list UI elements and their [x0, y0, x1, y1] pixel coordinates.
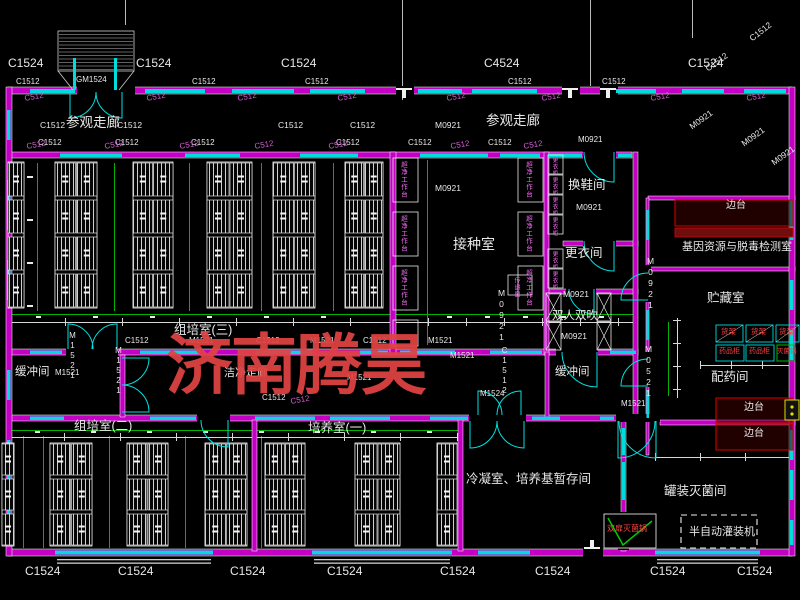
- label-locker-2: 更衣柜: [551, 177, 557, 197]
- label-c1512-cor-3: C1512: [278, 121, 303, 130]
- label-locker-1: 更衣柜: [551, 157, 557, 177]
- label-c1512-top-1: C1512: [16, 78, 40, 86]
- label-medicine-cabinet-2: 药品柜: [749, 348, 770, 355]
- label-clean-bench-l1: 超净工作台: [399, 161, 406, 199]
- watermark-text: 济南腾昊: [166, 332, 426, 398]
- label-m0921-diag-2: M0921: [740, 126, 766, 148]
- label-c1512-cor-4: C1512: [350, 121, 375, 130]
- label-semi-auto-filler: 半自动灌装机: [689, 527, 755, 538]
- label-side-bench-2: 边台: [744, 403, 764, 413]
- label-locker-3: 更衣柜: [551, 197, 557, 217]
- label-clean-bench-r2: 超净工作台: [524, 215, 531, 253]
- label-c1524-bot-4: C1524: [327, 565, 362, 577]
- label-c1512-w2-6: C1512: [488, 139, 512, 147]
- label-locker-6: 更衣柜: [551, 271, 557, 291]
- label-m1521-mid-3: M1521: [428, 337, 452, 345]
- label-m0921-cor: M0921: [435, 121, 461, 130]
- label-m0921-change: M0921: [563, 290, 589, 299]
- label-shelf-1: 货架: [721, 328, 736, 336]
- label-c512-top-2: C512: [146, 92, 166, 103]
- label-room-air-shower: 双人双吹: [552, 311, 598, 323]
- label-c1512-cor-2: C1512: [117, 121, 142, 130]
- label-c512-top-6: C512: [541, 92, 561, 103]
- label-c512-top-5: C512: [446, 92, 466, 103]
- label-clean-bench-l3: 超净工作台: [399, 269, 406, 307]
- label-c1512-top-3: C1512: [305, 78, 329, 86]
- label-c1524-bot-3: C1524: [230, 565, 265, 577]
- label-gm1524: GM1524: [76, 76, 107, 84]
- label-c512-top-3: C512: [237, 92, 257, 103]
- label-clean-bench-l2: 超净工作台: [399, 215, 406, 253]
- label-room-visit-corridor-left: 参观走廊: [66, 116, 120, 130]
- label-clean-bench-r1: 超净工作台: [524, 161, 531, 199]
- label-c512-w2-6: C512: [450, 140, 470, 151]
- label-c512-top-4: C512: [337, 92, 357, 103]
- label-room-shoe-change: 换鞋间: [568, 179, 606, 192]
- label-c512-w2-7: C512: [523, 140, 543, 151]
- label-c1524-bot-1: C1524: [25, 565, 60, 577]
- label-m0921-w2: M0921: [578, 136, 602, 144]
- drawing-labels-layer: 参观走廊参观走廊组培室(三)接种室换鞋间更衣间双人双吹缓冲间缓冲间组培室(二)培…: [0, 0, 800, 600]
- label-c1524-top-1: C1524: [8, 57, 43, 69]
- label-room-buffer-right: 缓冲间: [555, 367, 590, 379]
- label-c512-w2-5: C512: [328, 140, 348, 151]
- label-room-inoculation: 接种室: [453, 237, 495, 251]
- label-sterilizer-pot: 灭菌锅: [777, 349, 797, 356]
- label-m0921-diag-3: M0921: [770, 145, 796, 167]
- label-shelf-2: 货架: [751, 328, 766, 336]
- label-m0921-shower: M0921: [561, 332, 587, 341]
- label-c512-w2-2: C512: [104, 140, 124, 151]
- label-c1512-diag-1: C1512: [748, 21, 773, 43]
- label-c1512-w2-5: C1512: [408, 139, 432, 147]
- label-m0921-inoc: M0921: [435, 184, 461, 193]
- label-room-culture-1: 培养室(一): [308, 422, 366, 435]
- label-c1524-top-3: C1524: [281, 57, 316, 69]
- label-m0921-diag-1: M0921: [688, 109, 714, 131]
- label-c1524-bot-5: C1524: [440, 565, 475, 577]
- label-locker-4: 更衣柜: [551, 217, 557, 237]
- label-clean-bench-r3: 超净工作台: [524, 269, 531, 307]
- label-m1524-door: M1524: [480, 390, 504, 398]
- label-shelf-3: 货架: [779, 328, 794, 336]
- label-c4524-top: C4524: [484, 57, 519, 69]
- label-c512-w2-1: C512: [26, 140, 46, 151]
- label-m1521-v1: M1521: [68, 331, 76, 381]
- label-room-tissue-culture-2: 组培室(二): [74, 420, 132, 433]
- label-room-condensation-storage: 冷凝室、培养基暂存间: [466, 473, 591, 486]
- label-room-gene-resource-lab: 基因资源与脱毒检测室: [682, 242, 792, 253]
- label-pass-box: 传递窗: [513, 277, 519, 298]
- label-c512-w2-3: C512: [179, 140, 199, 151]
- label-c512-top-8: C512: [746, 92, 766, 103]
- label-c1512-top-5: C1512: [602, 78, 626, 86]
- label-c1524-bot-6: C1524: [535, 565, 570, 577]
- label-c512-w2-4: C512: [254, 140, 274, 151]
- label-c1512-mid-1: C1512: [125, 337, 149, 345]
- label-medicine-cabinet-1: 药品柜: [719, 348, 740, 355]
- label-room-dispensary: 配药间: [711, 371, 749, 384]
- label-c1512-top-2: C1512: [192, 78, 216, 86]
- label-side-bench-3: 边台: [744, 429, 764, 439]
- label-c512-top-7: C512: [650, 92, 670, 103]
- label-m0521-v: M0521: [644, 344, 653, 399]
- label-double-door-sterilizer: 双扉灭菌锅: [607, 525, 647, 533]
- label-m1521-v2: M1521: [114, 346, 122, 396]
- label-c1524-bot-7: C1524: [650, 565, 685, 577]
- label-side-bench-1: 边台: [726, 201, 746, 211]
- label-m0921-v1: M0921: [497, 288, 506, 343]
- label-room-clothes-change: 更衣间: [565, 247, 603, 260]
- label-m1521-mid-4: M1521: [450, 352, 474, 360]
- label-locker-5: 更衣柜: [551, 251, 557, 271]
- label-c1524-bot-2: C1524: [118, 565, 153, 577]
- label-m0921-v2: M0921: [646, 256, 655, 311]
- label-room-storage: 贮藏室: [707, 292, 745, 305]
- label-room-canning-sterilization: 罐装灭菌间: [664, 485, 727, 498]
- label-c1524-top-2: C1524: [136, 57, 171, 69]
- label-room-visit-corridor-right: 参观走廊: [486, 114, 540, 128]
- label-c512-top-1: C512: [24, 92, 44, 103]
- label-room-buffer-left: 缓冲间: [15, 367, 50, 379]
- label-c1524-bot-8: C1524: [737, 565, 772, 577]
- label-m1521-right: M1521: [621, 400, 645, 408]
- label-c1512-cor-1: C1512: [40, 121, 65, 130]
- label-c1512-top-4: C1512: [508, 78, 532, 86]
- cad-floorplan-screenshot: 参观走廊参观走廊组培室(三)接种室换鞋间更衣间双人双吹缓冲间缓冲间组培室(二)培…: [0, 0, 800, 600]
- label-m0921-shoe: M0921: [576, 203, 602, 212]
